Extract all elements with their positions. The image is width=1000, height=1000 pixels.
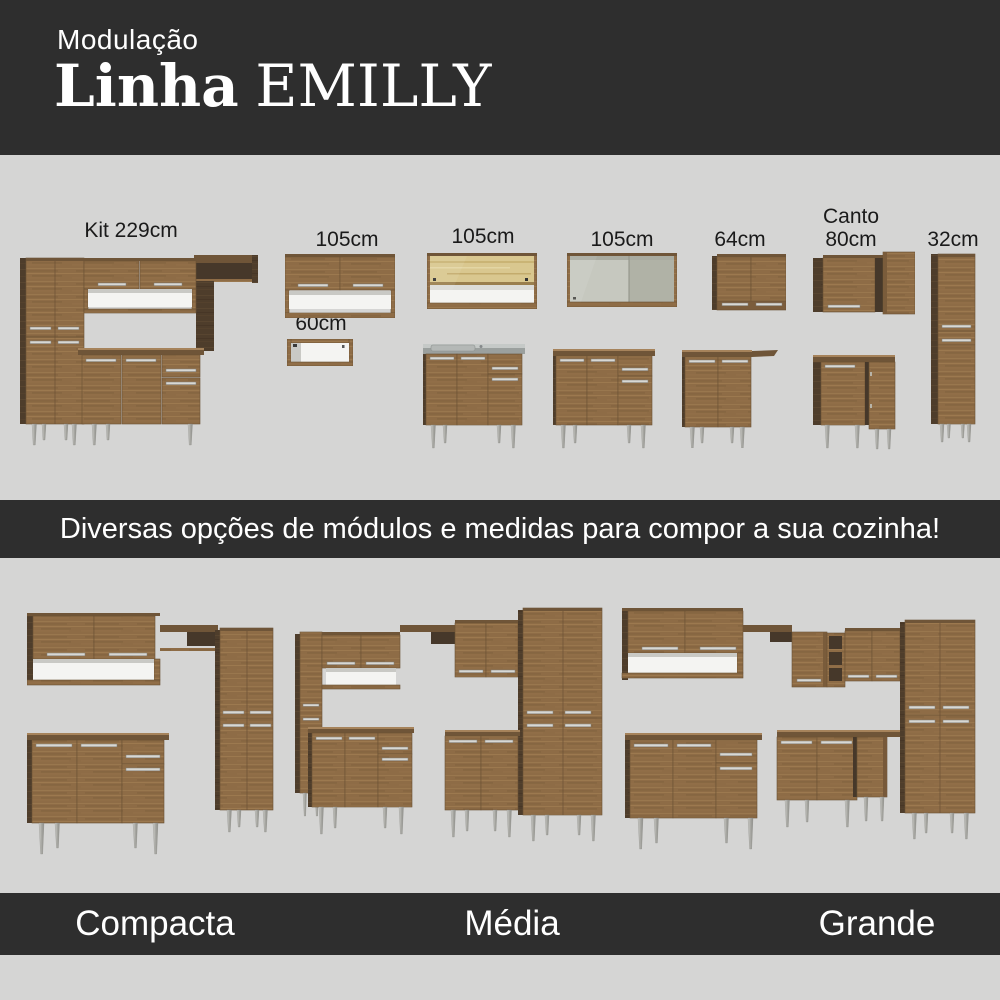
label-canto-80: Canto 80cm — [801, 205, 901, 251]
bottom-strip — [0, 955, 1000, 1000]
banner-text: Diversas opções de módulos e medidas par… — [0, 500, 1000, 558]
collection-title: Linha EMILLY — [54, 52, 491, 120]
wall-64-graphic — [712, 254, 786, 312]
canto-80-graphic — [813, 251, 915, 315]
set-compacta-graphic — [27, 606, 280, 856]
wall-105-glass-graphic — [427, 253, 537, 309]
label-wall-105-glass: 105cm — [425, 225, 541, 248]
set-grande-graphic — [620, 603, 976, 851]
base-64-graphic — [682, 350, 788, 448]
wall-105-sliding-graphic — [567, 253, 677, 307]
collection-title-name: EMILLY — [255, 52, 491, 120]
label-canto-80-line2: 80cm — [825, 228, 876, 251]
base-105-graphic — [553, 349, 655, 449]
set-label-grande: Grande — [777, 893, 977, 955]
set-label-media: Média — [412, 893, 612, 955]
label-tall-32: 32cm — [903, 228, 1000, 251]
set-media-graphic — [293, 604, 608, 844]
label-wall-105-shelf: 105cm — [288, 228, 406, 251]
sink-base-105-graphic — [423, 344, 525, 450]
label-kit-229: Kit 229cm — [41, 219, 221, 242]
kit-229-graphic — [18, 253, 258, 471]
tall-32-graphic — [931, 252, 977, 444]
catalog-flyer: Modulação Linha EMILLY Kit 229cm 105cm 6… — [0, 0, 1000, 1000]
canto-base-graphic — [813, 352, 897, 452]
set-label-compacta: Compacta — [55, 893, 255, 955]
label-wall-105-sliding: 105cm — [564, 228, 680, 251]
label-canto-80-line1: Canto — [823, 205, 879, 228]
collection-title-prefix: Linha — [54, 52, 239, 120]
shelf-60-graphic — [287, 339, 353, 366]
wall-105-shelf-graphic — [285, 254, 395, 318]
label-wall-64: 64cm — [690, 228, 790, 251]
